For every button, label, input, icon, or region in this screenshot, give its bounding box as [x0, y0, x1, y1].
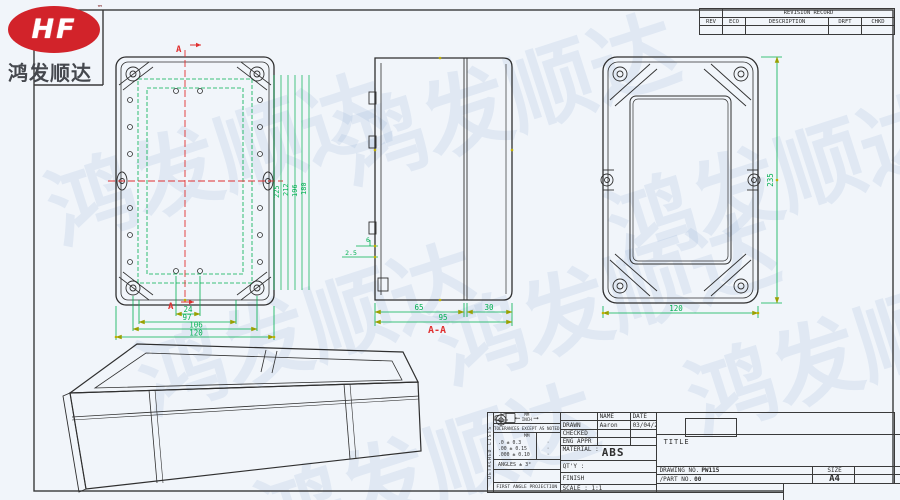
logo-oval: HF ™	[8, 6, 100, 53]
revision-col-description: DESCRIPTION	[745, 18, 828, 26]
drawing-sheet: 鸿发顺达 鸿发顺达 鸿发顺达 鸿发顺达 鸿发顺达 鸿发顺达 鸿发顺达	[0, 0, 900, 500]
svg-text:A: A	[168, 302, 174, 312]
drawing-no-value: PW115	[701, 467, 719, 474]
part-no-value: 00	[694, 476, 701, 483]
svg-text:65: 65	[414, 303, 423, 312]
revision-record-table: REVISION RECORD REV ECO DESCRIPTION DRFT…	[699, 8, 895, 35]
svg-text:2.5: 2.5	[345, 249, 357, 257]
section-labels: A A	[168, 43, 201, 312]
tolerance-table: MM .0 ± 0.3 .00 ± 0.15 .000 ± 0.10 · · ·	[494, 432, 560, 459]
svg-text:225: 225	[273, 185, 281, 198]
sheet-row: SHEET1 OF1	[783, 484, 900, 500]
material-row: MATERIAL :ABS	[561, 445, 656, 460]
units-arrow-left: ⟵	[516, 415, 520, 422]
rev-label: REV	[854, 467, 900, 474]
back-view-dim-labels: 235 120	[669, 173, 775, 313]
svg-text:30: 30	[484, 303, 494, 312]
customer-logo-box	[685, 418, 737, 437]
title-area: TITLE DRAWING NO.PW115 SIZE REV /PART NO…	[656, 413, 900, 492]
approval-block: NAME DATE DRAWN Aaron 03/04/2015 CHECKED…	[560, 413, 656, 492]
company-logo: HF ™ 鸿发顺达	[8, 6, 104, 84]
svg-text:196: 196	[291, 184, 299, 197]
revision-empty-cell	[700, 9, 722, 17]
title-block: DETACHED LISTS ⟵ MM INCH ⟶ TOLERANCES EX…	[487, 412, 895, 493]
logo-trademark: ™	[98, 4, 102, 12]
part-no-row: /PART NO.00	[657, 475, 812, 483]
units-arrow-right: ⟶	[534, 415, 538, 422]
svg-text:95: 95	[438, 313, 447, 322]
company-name-chinese: 鸿发顺达	[8, 57, 104, 86]
logo-brand-text: HF	[31, 14, 76, 45]
revision-col-drft: DRFT	[828, 18, 861, 26]
svg-text:A: A	[176, 45, 182, 55]
projection-symbols	[494, 469, 560, 482]
name-header: NAME	[597, 413, 630, 420]
scale-row: SCALE : 1:1	[561, 484, 656, 492]
revision-col-chkd: CHKD	[861, 18, 894, 26]
isometric-view	[63, 344, 421, 492]
size-value: A4	[812, 475, 854, 483]
back-view	[601, 57, 760, 303]
section-view	[369, 58, 512, 300]
title-label: TITLE	[657, 434, 900, 466]
svg-text:180: 180	[300, 182, 308, 195]
revision-col-rev: REV	[700, 18, 722, 26]
drawn-name: Aaron	[597, 421, 630, 429]
first-angle-target-icon	[494, 413, 508, 427]
drawing-no-row: DRAWING NO.PW115	[657, 467, 812, 474]
finish-row: FINISH	[561, 472, 656, 484]
revision-title: REVISION RECORD	[722, 9, 894, 17]
drawn-date: 03/04/2015	[630, 421, 656, 429]
tolerance-unit-header: MM	[494, 434, 560, 439]
date-header: DATE	[630, 413, 656, 420]
eng-appr-label: ENG APPR	[561, 438, 597, 445]
size-label: SIZE	[812, 467, 854, 474]
drawn-label: DRAWN	[561, 421, 597, 429]
revision-col-eco: ECO	[722, 18, 745, 26]
svg-text:120: 120	[669, 304, 683, 313]
do-not-scale-note: DO NOT SCALE DRAWING	[657, 484, 783, 500]
svg-text:212: 212	[282, 183, 290, 196]
top-view-side-dim-labels: 225 212 196 180	[273, 182, 308, 198]
angles-tolerance: ANGLES ± 3°	[494, 459, 560, 469]
material-value: ABS	[602, 446, 625, 460]
section-view-label: A-A	[428, 325, 446, 336]
section-view-dims	[342, 240, 512, 326]
qty-row: QT'Y :	[561, 460, 656, 472]
units-inch: INCH	[522, 418, 532, 423]
tolerance-block: ⟵ MM INCH ⟶ TOLERANCES EXCEPT AS NOTED M…	[493, 413, 560, 492]
svg-text:235: 235	[766, 173, 775, 187]
checked-label: CHECKED	[561, 430, 597, 437]
svg-text:6: 6	[366, 236, 370, 244]
svg-text:120: 120	[189, 329, 203, 338]
projection-label: FIRST ANGLE PROJECTION	[494, 482, 560, 492]
section-view-dim-labels: 65 30 95 6 2.5	[345, 236, 494, 322]
